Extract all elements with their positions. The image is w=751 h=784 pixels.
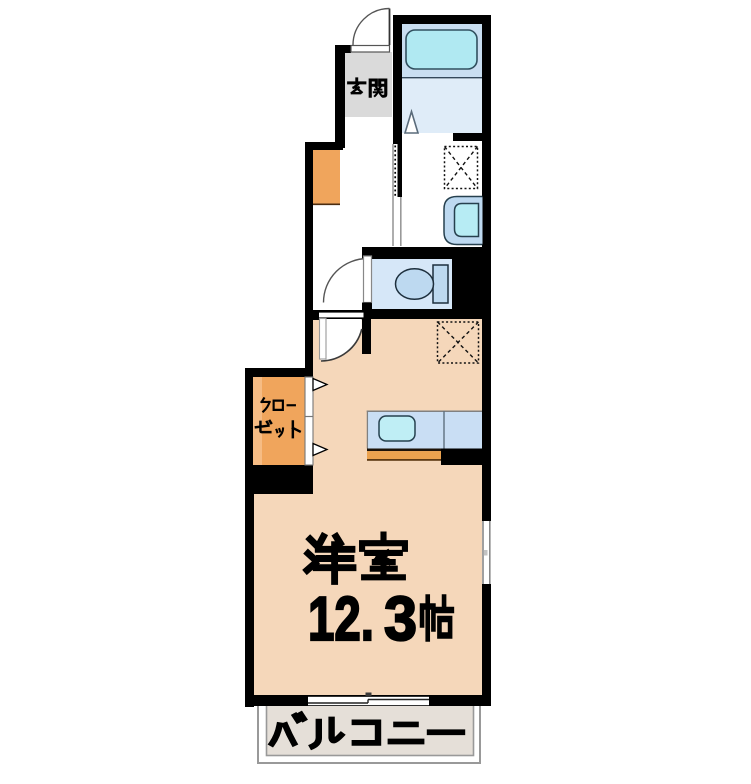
svg-text:12.: 12. — [308, 585, 374, 654]
svg-text:3: 3 — [384, 585, 417, 654]
